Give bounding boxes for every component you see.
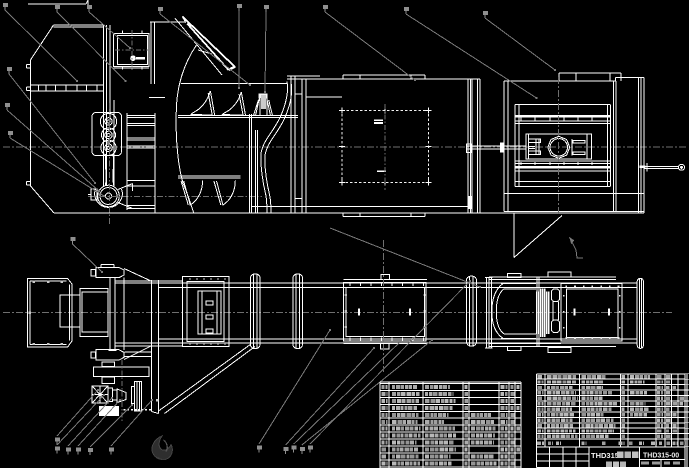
svg-text:THD315-00: THD315-00 xyxy=(643,453,679,460)
svg-text:THD315: THD315 xyxy=(591,451,619,460)
